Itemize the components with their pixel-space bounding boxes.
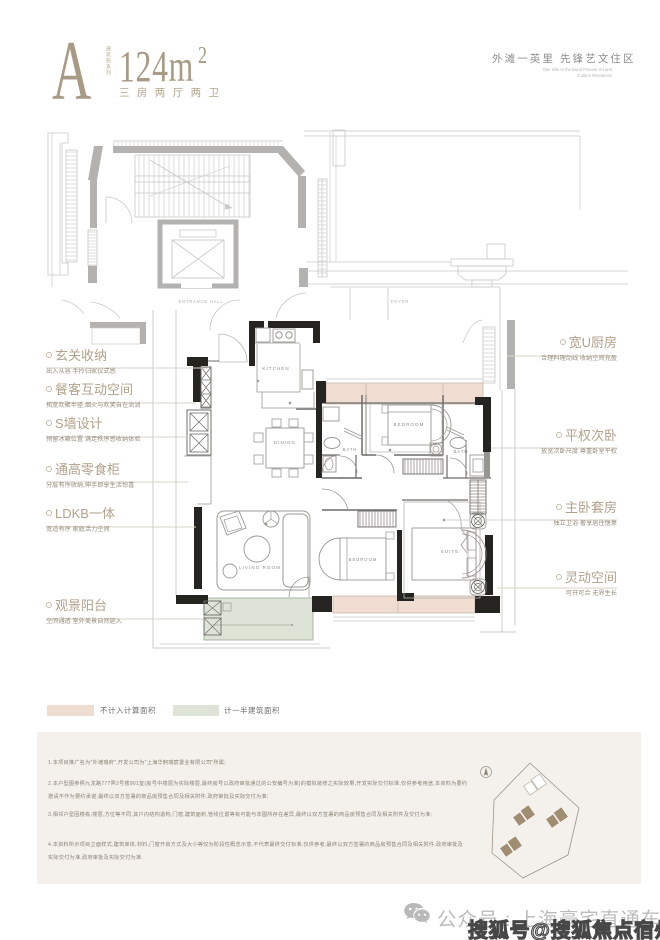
svg-text:BEDROOM: BEDROOM	[349, 557, 378, 562]
svg-text:ENTRANCE HALL: ENTRANCE HALL	[178, 299, 223, 304]
svg-text:FOYER: FOYER	[391, 299, 409, 304]
svg-text:BATH: BATH	[343, 447, 358, 452]
svg-text:BEDROOM: BEDROOM	[394, 422, 425, 427]
svg-text:LIVING ROOM: LIVING ROOM	[239, 565, 281, 570]
svg-text:DINING: DINING	[274, 440, 296, 445]
svg-text:SUITE: SUITE	[441, 549, 460, 554]
svg-text:KITCHEN: KITCHEN	[262, 366, 289, 371]
